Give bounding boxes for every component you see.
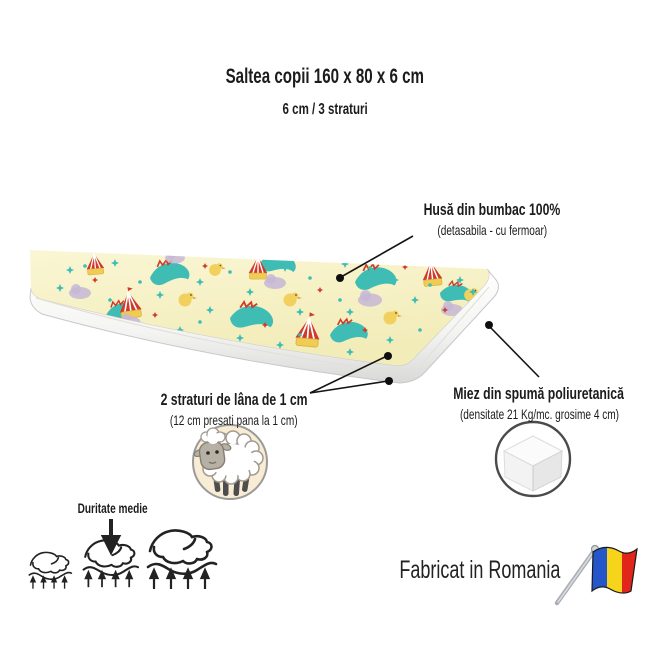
scene-graphic xyxy=(0,0,650,650)
pattern-motif-dot xyxy=(428,283,432,287)
callout-cover: Husă din bumbac 100% (detasabila - cu fe… xyxy=(377,200,607,238)
page-subtitle: 6 cm / 3 straturi xyxy=(0,101,650,119)
mattress-product-infographic: Saltea copii 160 x 80 x 6 cm 6 cm / 3 st… xyxy=(0,0,650,650)
mattress-illustration xyxy=(30,249,498,383)
foam-block-icon xyxy=(496,422,570,496)
callout-foam-title: Miez din spumă poliuretanică xyxy=(408,384,650,404)
callout-foam: Miez din spumă poliuretanică (densitate … xyxy=(408,384,650,422)
wool-callout-dot-2 xyxy=(385,377,393,385)
hand-press-large-icon xyxy=(148,530,216,589)
page-title: Saltea copii 160 x 80 x 6 cm xyxy=(0,65,650,89)
sheep-icon xyxy=(193,425,267,499)
romania-flag-icon xyxy=(557,542,640,603)
pattern-motif-dot xyxy=(228,270,232,274)
callout-cover-title: Husă din bumbac 100% xyxy=(377,200,607,220)
callout-wool-title: 2 straturi de lâna de 1 cm xyxy=(109,390,359,410)
callout-wool-note: (12 cm presati pana la 1 cm) xyxy=(109,412,359,428)
foam-callout-dot xyxy=(485,321,493,329)
callout-cover-note: (detasabila - cu fermoar) xyxy=(377,222,607,238)
firmness-pointer-arrow xyxy=(104,519,118,551)
pattern-motif-dot xyxy=(258,308,262,312)
wool-callout-dot-1 xyxy=(384,352,392,360)
hand-press-small-icon xyxy=(29,552,71,588)
pattern-motif-dot xyxy=(368,266,372,270)
pattern-motif-dot xyxy=(418,328,422,332)
pattern-motif-dot xyxy=(83,264,87,268)
pattern-motif-dot xyxy=(338,298,342,302)
pattern-motif-dot xyxy=(198,320,202,324)
firmness-label: Duritate medie xyxy=(38,500,188,516)
origin-label: Fabricat in Romania xyxy=(368,556,560,585)
pattern-motif-dot xyxy=(108,298,112,302)
foam-callout-line xyxy=(489,326,539,377)
pattern-motif-cloud xyxy=(165,250,185,264)
callout-foam-note: (densitate 21 Kg/mc. grosime 4 cm) xyxy=(408,406,650,422)
cover-callout-dot xyxy=(336,274,344,282)
pattern-motif-dot xyxy=(298,333,302,337)
callout-wool: 2 straturi de lâna de 1 cm (12 cm presat… xyxy=(109,390,359,428)
page-subtitle-text: 6 cm / 3 straturi xyxy=(282,101,367,119)
firmness-icons xyxy=(29,519,216,589)
page-title-text: Saltea copii 160 x 80 x 6 cm xyxy=(226,65,424,89)
pattern-motif-dot xyxy=(308,276,312,280)
pattern-motif-dot xyxy=(138,280,142,284)
